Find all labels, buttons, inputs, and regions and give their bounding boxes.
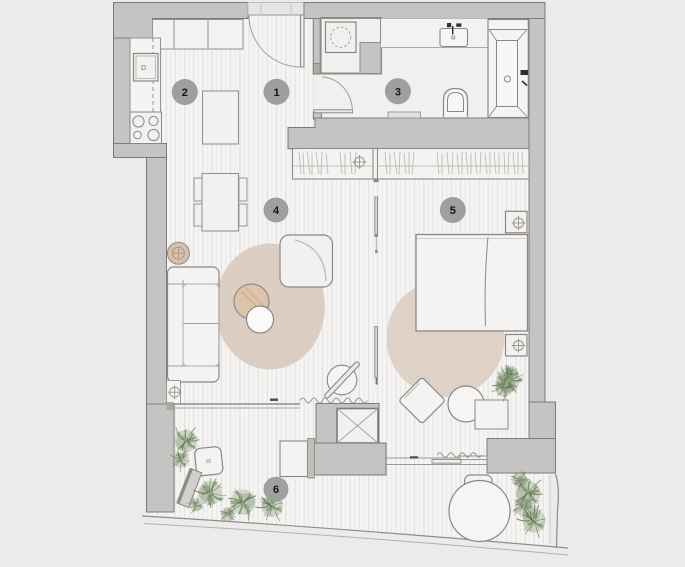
svg-text:D: D (141, 65, 146, 72)
svg-text:4: 4 (273, 205, 280, 217)
svg-text:5: 5 (450, 205, 456, 217)
svg-text:2: 2 (182, 87, 188, 99)
svg-text:1: 1 (273, 87, 279, 99)
svg-text:3: 3 (395, 86, 401, 98)
svg-text:6: 6 (273, 484, 279, 496)
